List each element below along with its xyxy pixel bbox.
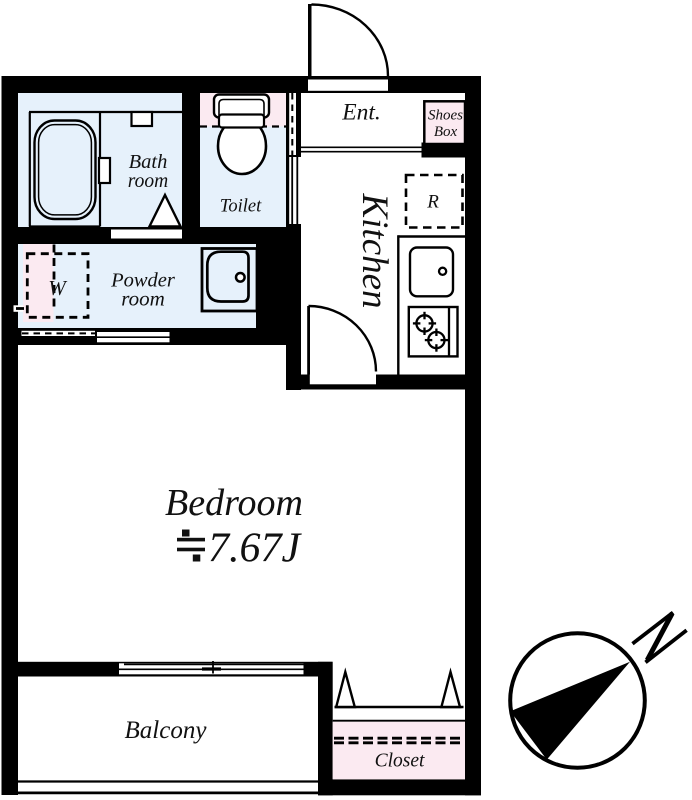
svg-text:Closet: Closet [375,751,425,772]
svg-text:Balcony: Balcony [125,717,208,744]
svg-text:7.67J: 7.67J [208,525,303,571]
svg-text:room: room [121,287,165,311]
svg-text:Bedroom: Bedroom [165,482,303,524]
svg-text:Bath: Bath [129,151,168,173]
svg-text:Box: Box [434,124,458,140]
svg-text:Toilet: Toilet [220,197,262,217]
svg-text:W: W [48,276,68,300]
svg-text:Shoes: Shoes [428,108,463,124]
svg-text:Ent.: Ent. [341,100,381,126]
svg-text:room: room [128,171,168,192]
svg-text:R: R [426,192,439,213]
svg-text:Kitchen: Kitchen [354,192,395,308]
